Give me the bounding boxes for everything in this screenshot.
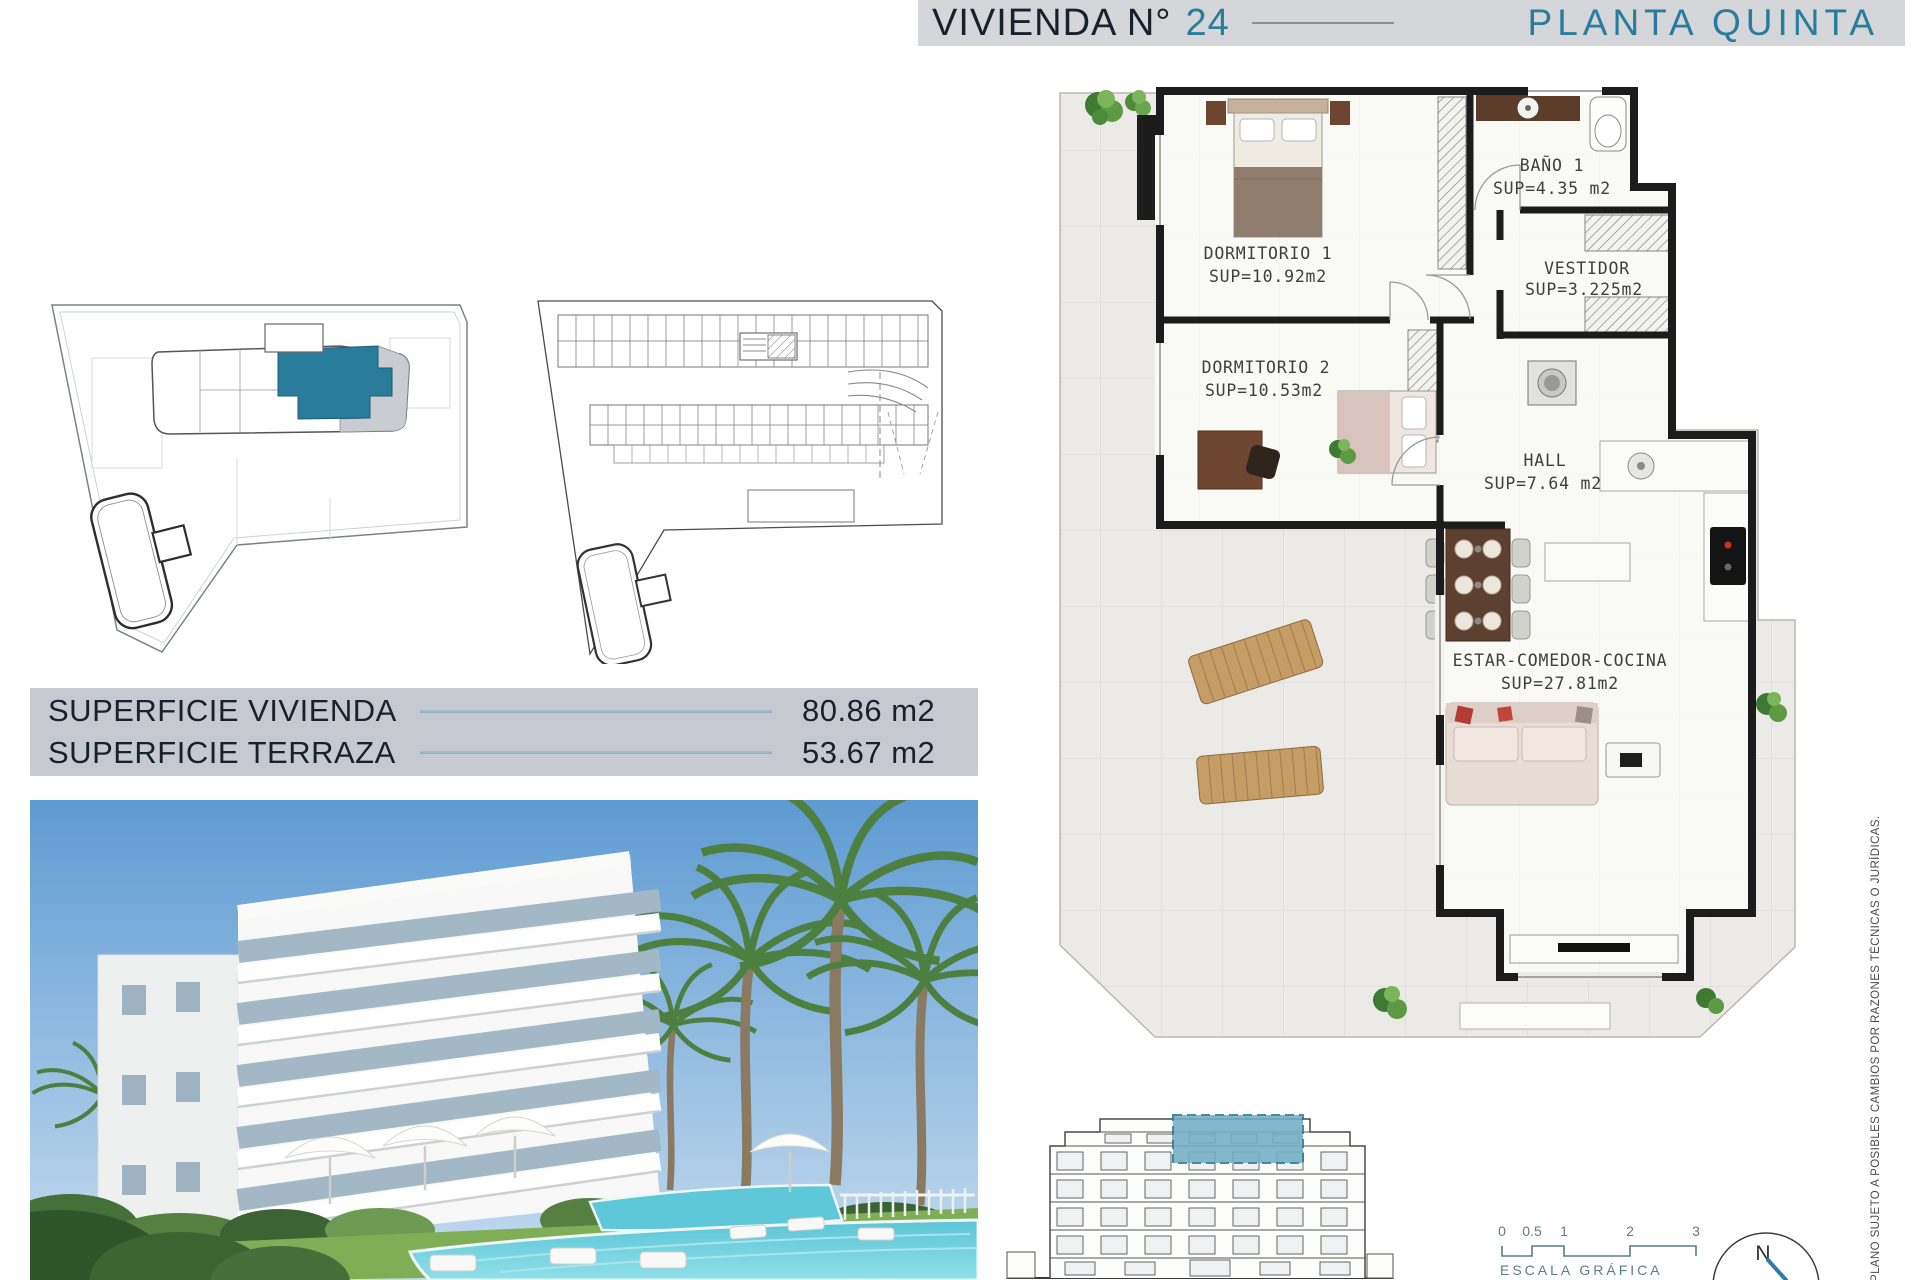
room-sup-dormitorio-2: SUP=10.53m2	[1205, 381, 1323, 400]
scale-tick-2: 2	[1626, 1223, 1634, 1239]
terrace-lounger	[1196, 746, 1324, 805]
leader-line	[420, 751, 772, 754]
header-divider-line	[1252, 22, 1394, 24]
scale-tick-0: 0	[1498, 1223, 1506, 1239]
surface-row-terraza: SUPERFICIE TERRAZA 53.67 m2	[48, 733, 952, 773]
surface-terraza-value: 53.67 m2	[802, 735, 952, 771]
tv	[1558, 943, 1630, 952]
room-label-hall: HALL	[1524, 451, 1567, 470]
building-render-photo	[30, 800, 978, 1280]
scale-tick-3: 3	[1692, 1223, 1700, 1239]
room-sup-dormitorio-1: SUP=10.92m2	[1209, 267, 1327, 286]
building-elevation	[1005, 1112, 1395, 1280]
north-compass: N	[1706, 1228, 1826, 1280]
room-sup-bano-1: SUP=4.35 m2	[1493, 179, 1611, 198]
compass-needle-icon	[1768, 1260, 1786, 1280]
room-label-dormitorio-2: DORMITORIO 2	[1202, 358, 1331, 377]
disclaimer-text: PLANO SUJETO A POSIBLES CAMBIOS POR RAZO…	[1870, 824, 1892, 1280]
leader-line	[420, 710, 772, 713]
scale-bar: 0 0.5 1 2 3 ESCALA GRÁFICA	[1492, 1222, 1732, 1280]
page-title: VIVIENDA N°	[932, 2, 1171, 45]
scale-tick-05: 0.5	[1522, 1223, 1542, 1239]
room-sup-vestidor: SUP=3.225m2	[1525, 280, 1643, 299]
surface-table: SUPERFICIE VIVIENDA 80.86 m2 SUPERFICIE …	[30, 688, 978, 776]
site-plan	[40, 298, 505, 658]
surface-vivienda-label: SUPERFICIE VIVIENDA	[48, 693, 420, 729]
header-band: VIVIENDA N° 24 PLANTA QUINTA	[918, 0, 1905, 46]
elevation-unit-highlight	[1173, 1115, 1303, 1163]
scale-tick-1: 1	[1560, 1223, 1568, 1239]
scale-bar-rule	[1502, 1246, 1696, 1256]
floor-label: PLANTA QUINTA	[1528, 2, 1879, 44]
surface-row-vivienda: SUPERFICIE VIVIENDA 80.86 m2	[48, 691, 952, 731]
room-sup-estar-comedor-cocina: SUP=27.81m2	[1501, 674, 1619, 693]
plan-sheet: VIVIENDA N° 24 PLANTA QUINTA	[0, 0, 1920, 1280]
washer	[1528, 361, 1576, 405]
room-label-estar-comedor-cocina: ESTAR-COMEDOR-COCINA	[1453, 651, 1668, 670]
garage-plan	[528, 292, 952, 664]
scale-bar-label: ESCALA GRÁFICA	[1500, 1262, 1663, 1278]
room-label-dormitorio-1: DORMITORIO 1	[1204, 244, 1333, 263]
unit-number: 24	[1185, 2, 1229, 45]
room-sup-hall: SUP=7.64 m2	[1484, 474, 1602, 493]
surface-terraza-label: SUPERFICIE TERRAZA	[48, 735, 420, 771]
surface-vivienda-value: 80.86 m2	[802, 693, 952, 729]
terrace-bench	[1460, 1003, 1610, 1029]
room-label-bano-1: BAÑO 1	[1520, 156, 1584, 175]
room-label-vestidor: VESTIDOR	[1544, 259, 1630, 278]
floor-plan: DORMITORIO 1 SUP=10.92m2 BAÑO 1 SUP=4.35…	[1040, 75, 1800, 1065]
